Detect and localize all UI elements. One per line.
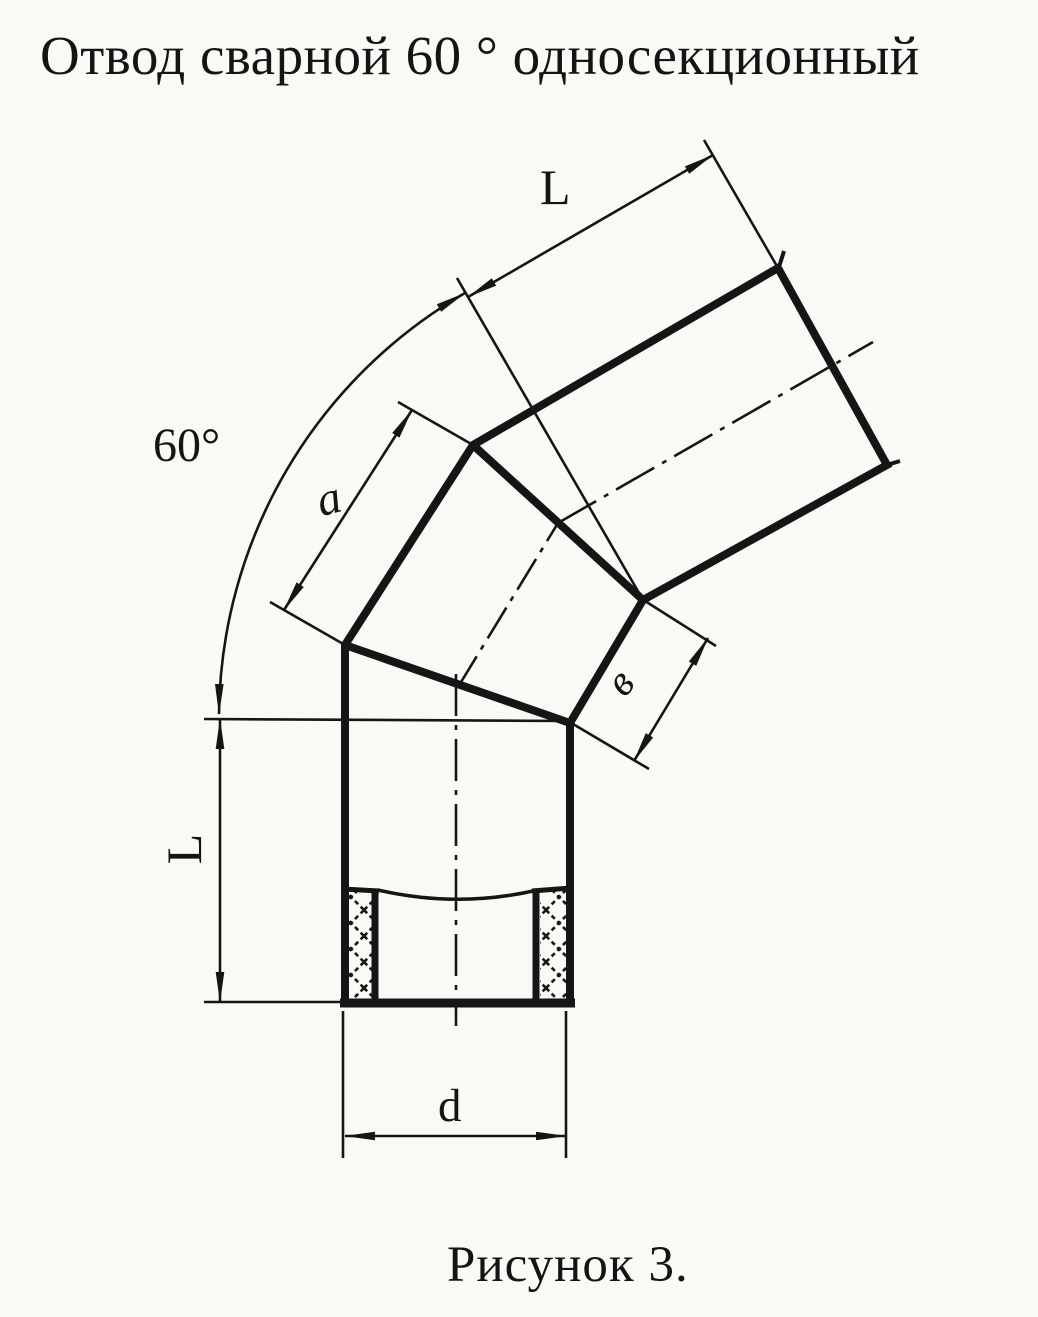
dimension-label-diameter: d [438,1079,462,1133]
ext-v-bottom [573,724,649,769]
ext-v-top [645,601,716,646]
dim-line-L-top [468,155,713,297]
centerlines [456,342,873,1026]
corner-overshoot-ticks [779,251,900,465]
dimension-label-bend-angle: 60° [153,418,220,473]
dimension-label-L-top: L [540,158,571,216]
outer-silhouette [345,268,887,1001]
elbow-outline [340,251,900,1003]
scanned-drawing-page: Отвод сварной 60 ° односекционный [0,0,1038,1317]
ext-miter-level-horizontal [204,719,570,721]
dimension-lines [219,155,713,1136]
dim-line-v [634,638,708,761]
ext-a-bottom [270,602,345,645]
hatch-left-wall [349,891,372,1000]
dim-line-a [284,410,412,610]
ext-a-top [398,402,473,445]
hatch-right-wall [540,891,566,1000]
centerline-middle-section [458,523,558,687]
elbow-technical-drawing [0,0,1038,1317]
dimension-label-L-left: L [155,823,213,875]
ext-end-face-top [704,140,778,268]
figure-caption: Рисунок 3. [447,1236,689,1294]
